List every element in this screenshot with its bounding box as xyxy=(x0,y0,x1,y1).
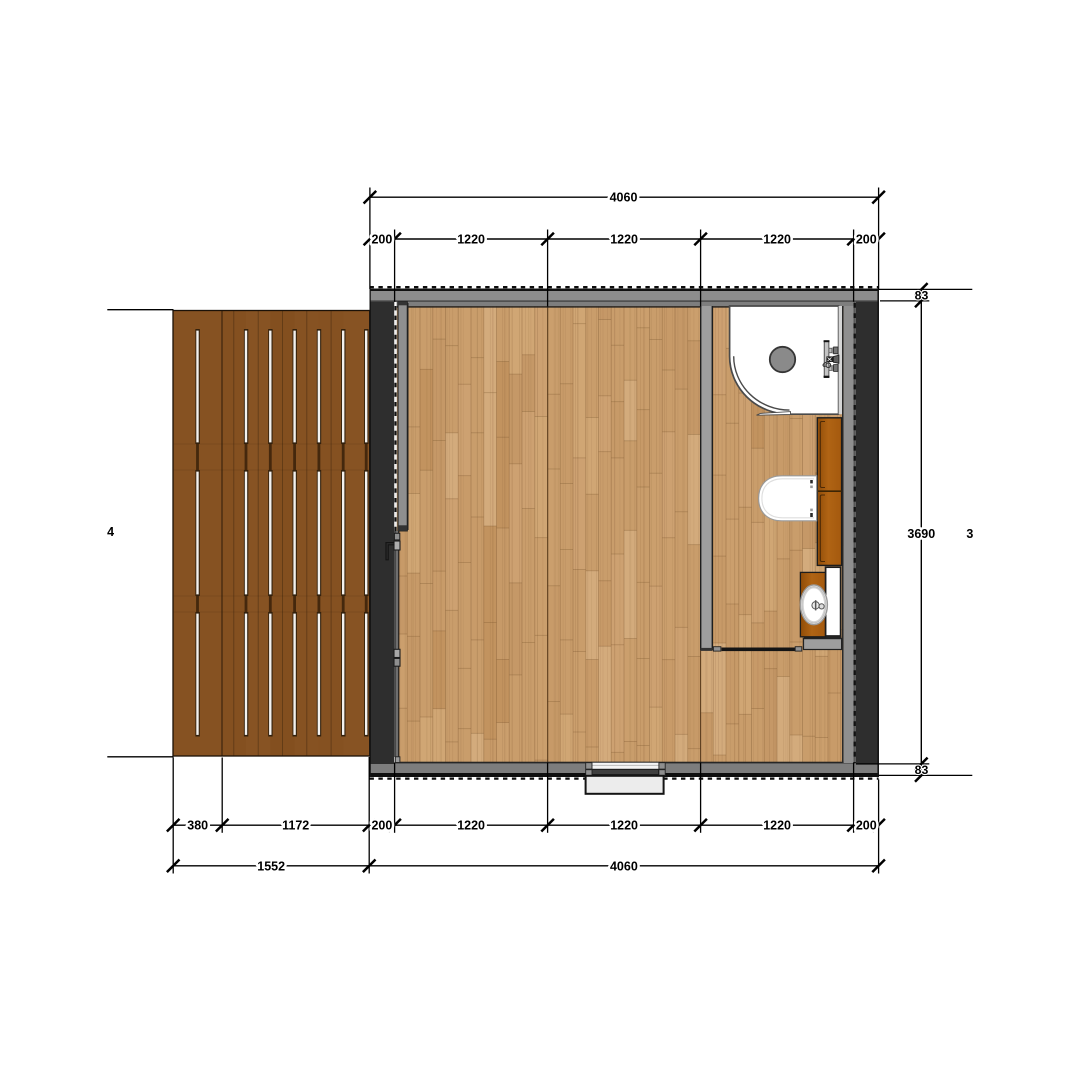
svg-text:4060: 4060 xyxy=(610,191,638,205)
svg-text:83: 83 xyxy=(915,289,929,303)
svg-text:3: 3 xyxy=(966,527,973,541)
svg-text:83: 83 xyxy=(915,763,929,777)
svg-text:1220: 1220 xyxy=(610,233,638,247)
svg-text:3690: 3690 xyxy=(907,527,935,541)
svg-text:1172: 1172 xyxy=(282,819,309,833)
svg-text:1220: 1220 xyxy=(457,233,485,247)
svg-text:1220: 1220 xyxy=(763,233,791,247)
svg-text:1220: 1220 xyxy=(763,819,791,833)
svg-text:1220: 1220 xyxy=(457,819,485,833)
svg-text:1552: 1552 xyxy=(257,859,285,873)
svg-text:1220: 1220 xyxy=(610,819,638,833)
svg-text:380: 380 xyxy=(187,819,208,833)
svg-text:200: 200 xyxy=(371,233,392,247)
svg-text:200: 200 xyxy=(371,819,392,833)
svg-text:4: 4 xyxy=(107,525,114,539)
svg-text:4060: 4060 xyxy=(610,859,638,873)
svg-text:200: 200 xyxy=(856,233,877,247)
svg-text:200: 200 xyxy=(856,819,877,833)
